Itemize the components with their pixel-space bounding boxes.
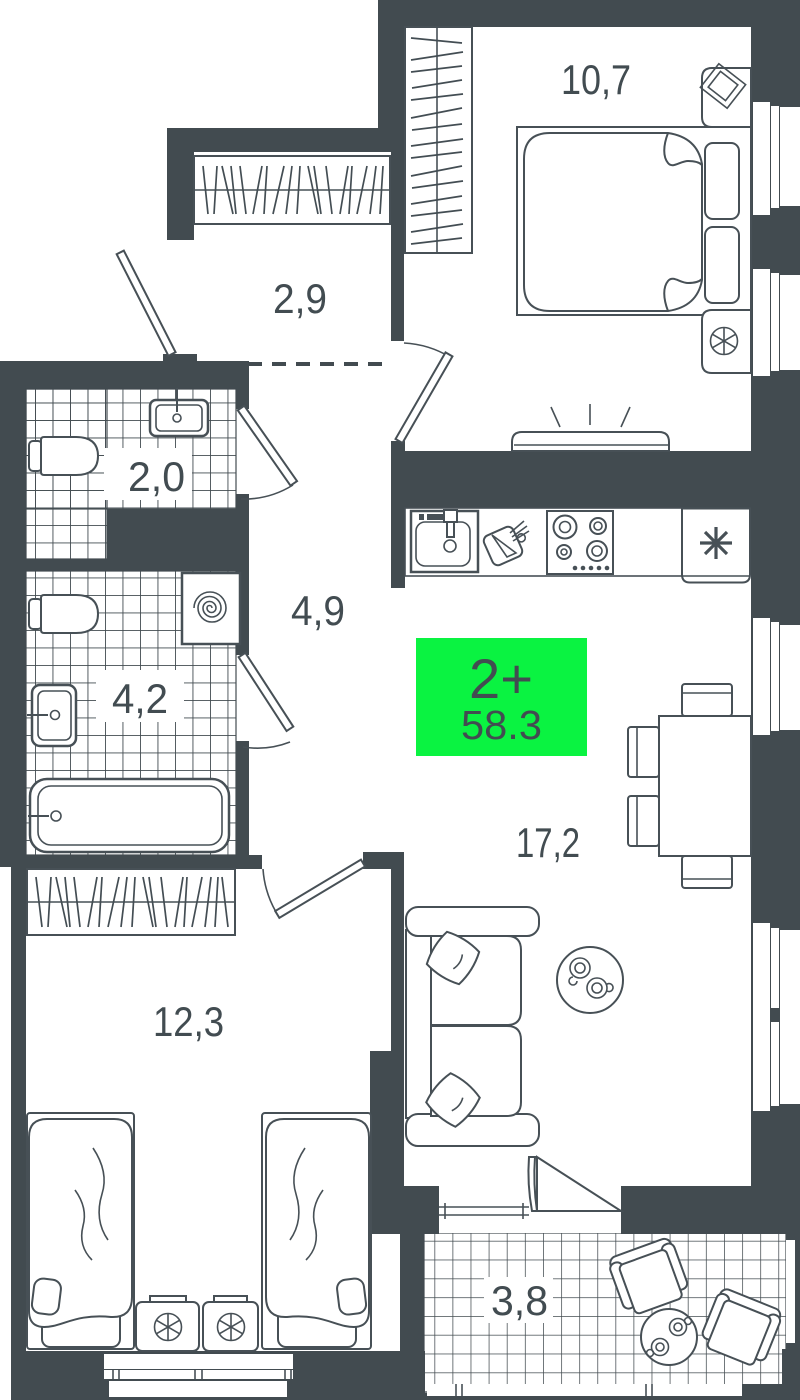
svg-text:10,7: 10,7 [561,56,631,103]
svg-text:58.3: 58.3 [461,702,542,748]
svg-text:17,2: 17,2 [516,819,580,866]
svg-text:12,3: 12,3 [153,998,224,1045]
svg-text:2,9: 2,9 [273,275,327,322]
svg-text:3,8: 3,8 [491,1277,548,1324]
svg-text:2,0: 2,0 [128,453,185,500]
svg-text:2+: 2+ [469,647,533,710]
svg-text:4,2: 4,2 [112,675,168,722]
svg-text:4,9: 4,9 [291,587,345,634]
